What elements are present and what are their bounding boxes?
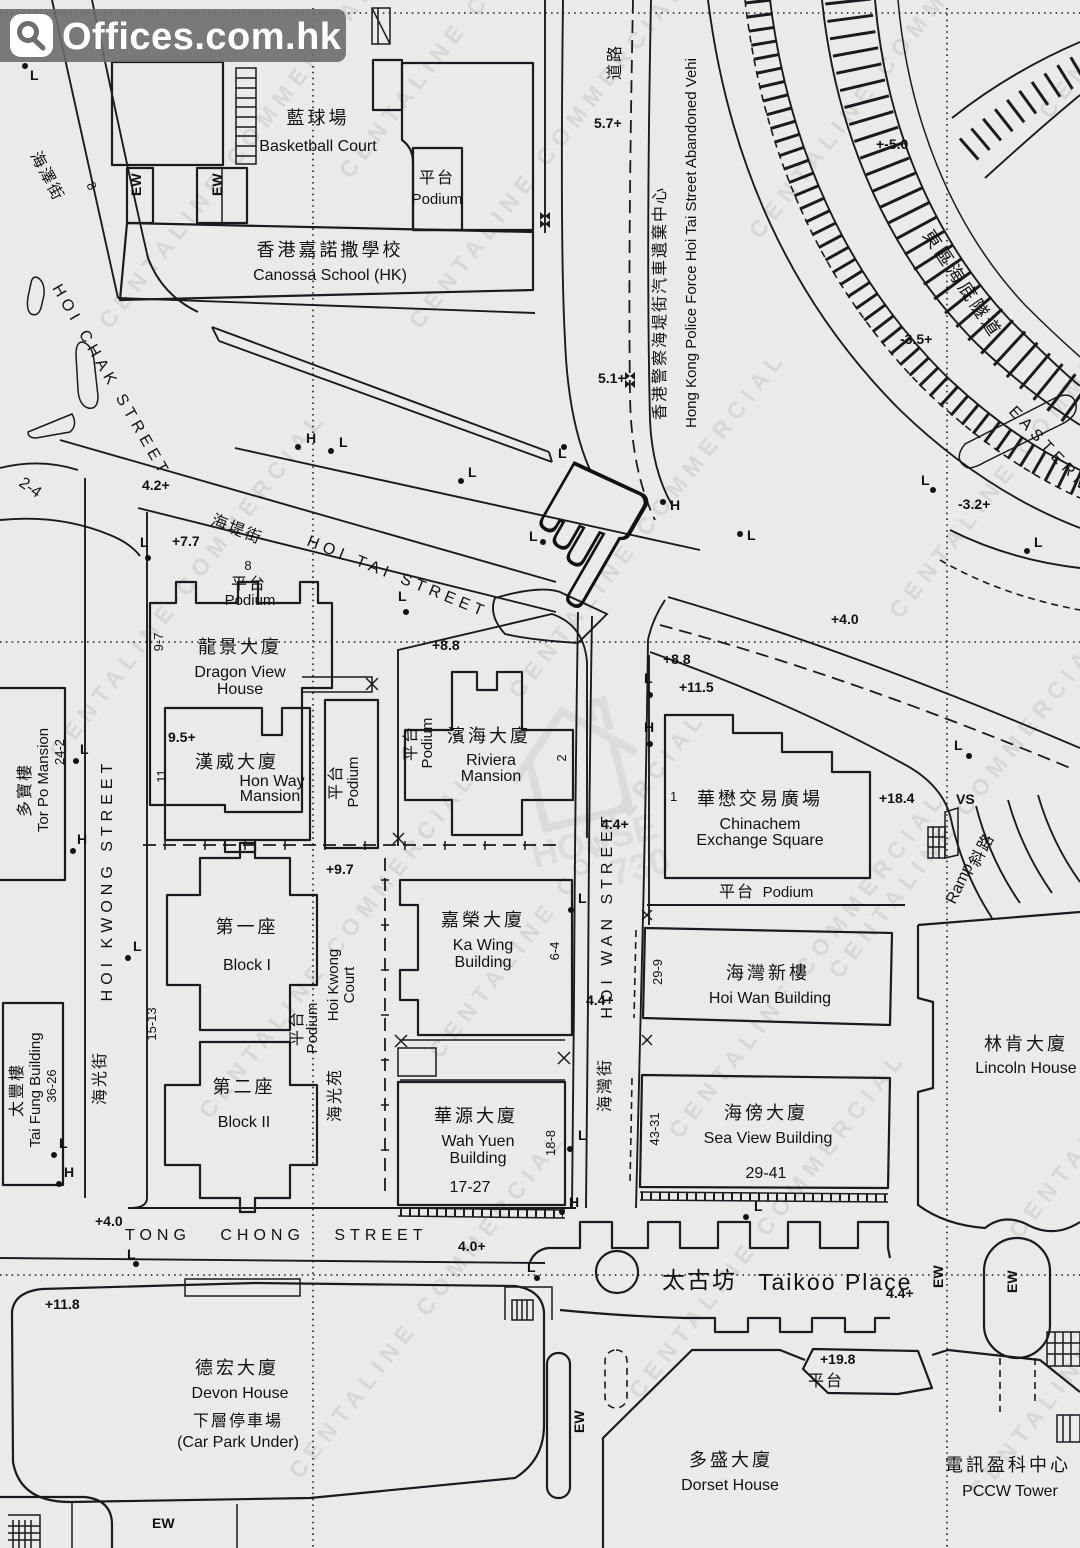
marker-label-l: L — [127, 1246, 136, 1262]
devon-label-en: Devon House — [192, 1385, 289, 1402]
ka-wing-label-en2: Building — [455, 954, 512, 971]
marker-label-h: H — [64, 1164, 74, 1180]
hoi-kwong-street-label-en: HOI KWONG STREET — [99, 759, 116, 1002]
basketball-court-label-en: Basketball Court — [259, 138, 377, 155]
marker-label-l: L — [398, 588, 407, 604]
survey-dot — [568, 907, 574, 913]
hon-way-podium-en: Podium — [345, 757, 362, 808]
sea-view-label-zh: 海傍大廈 — [724, 1103, 808, 1123]
dragon-view-podium-zh: 平台 — [231, 575, 267, 593]
spot-height-label: 4.4+ — [586, 992, 614, 1008]
canossa-school-label-zh: 香港嘉諾撒學校 — [257, 240, 404, 260]
tai-fung-nums: 36-26 — [44, 1069, 59, 1102]
survey-dot — [647, 692, 653, 698]
map-screenshot: CENTALINE COMMERCIALCENTALINE COMMERCIAL… — [0, 0, 1080, 1548]
marker-label-l: L — [644, 670, 653, 686]
hoi-wan-building-label-zh: 海灣新樓 — [726, 963, 810, 983]
ka-wing-label-zh: 嘉榮大廈 — [441, 910, 525, 930]
marker-label-h: H — [77, 831, 87, 847]
spot-height-label: +8.8 — [432, 637, 460, 653]
hoi-chak-number: 8 — [83, 179, 100, 193]
marker-label-l: L — [80, 741, 89, 757]
marker-label-l: L — [339, 434, 348, 450]
marker-label-l: L — [578, 890, 587, 906]
podium-label-en: Podium — [412, 191, 463, 208]
marker-label-ew: EW — [128, 173, 144, 196]
riviera-podium-en: Podium — [419, 718, 436, 769]
tor-po-label-en: Tor Po Mansion — [35, 728, 52, 832]
survey-dot — [328, 448, 334, 454]
offices-logo: Offices.com.hk — [0, 9, 346, 62]
spot-height-label: +4.0 — [95, 1213, 123, 1229]
hoi-wan-building-lot: 29-9 — [650, 959, 665, 985]
marker-label-l: L — [468, 464, 477, 480]
marker-label-l: L — [921, 472, 930, 488]
survey-dot — [743, 1214, 749, 1220]
spot-height-label: +4.0 — [831, 611, 859, 627]
spot-height-label: 4.4+ — [601, 816, 629, 832]
spot-height-label: +19.8 — [820, 1351, 856, 1367]
survey-dot — [125, 955, 131, 961]
block2-label-zh: 第二座 — [213, 1077, 276, 1097]
survey-dot — [534, 1275, 540, 1281]
marker-label-l: L — [59, 1135, 68, 1151]
taikoo-podium-zh: 平台 — [808, 1372, 844, 1390]
survey-dot — [567, 1146, 573, 1152]
hoi-chak-street-label-zh: 海澤街 — [26, 148, 67, 204]
marker-label-ew: EW — [930, 1265, 946, 1288]
spot-height-label: 4.2+ — [142, 477, 170, 493]
pccw-label-zh: 電訊盈科中心 — [945, 1455, 1071, 1475]
survey-dot — [966, 753, 972, 759]
marker-label-l: L — [30, 67, 39, 83]
marker-label-h: H — [569, 1194, 579, 1210]
marker-label-h: H — [644, 719, 654, 735]
lincoln-label-zh: 林肯大廈 — [984, 1034, 1068, 1054]
tai-fung-label-zh: 太豐樓 — [8, 1063, 26, 1117]
spot-height-label: 4.4+ — [886, 1285, 914, 1301]
wah-yuen-label-zh: 華源大廈 — [434, 1106, 518, 1126]
ramp-label-zh: 斜路 — [966, 830, 999, 870]
watermark-text: CENTALINE COMMERCIAL — [43, 404, 331, 763]
block1-label-zh: 第一座 — [216, 917, 279, 937]
hon-way-label-zh: 漢威大廈 — [195, 752, 279, 772]
blocks-podium-en: Podium — [304, 1003, 321, 1054]
survey-dot — [403, 609, 409, 615]
marker-label-l: L — [527, 1259, 536, 1275]
spot-height-label: +18.4 — [879, 790, 915, 806]
taikoo-place-label-zh: 太古坊 — [662, 1267, 737, 1293]
hon-way-lot: 11 — [154, 769, 169, 783]
tong-chong-street-label: TONG CHONG STREET — [125, 1227, 428, 1244]
dragon-view-podium-en: Podium — [225, 592, 276, 609]
basketball-court-label-zh: 藍球場 — [287, 108, 350, 128]
watermark-text: CENTALINE COMMERCIAL — [743, 0, 1031, 243]
wah-yuen-label-en1: Wah Yuen — [442, 1133, 515, 1150]
marker-label-vs: VS — [956, 791, 975, 807]
sea-view-lot: 43-31 — [647, 1112, 662, 1145]
tor-po-label-zh: 多寶樓 — [15, 763, 34, 817]
riviera-label-en1: Riviera — [466, 752, 516, 769]
dorset-label-en: Dorset House — [681, 1477, 779, 1494]
hoi-wan-building-label-en: Hoi Wan Building — [709, 990, 831, 1007]
spot-height-label: +11.5 — [679, 679, 714, 695]
watermark-text: CENTALINE COMMERCIAL — [963, 1144, 1080, 1503]
spot-height-label: +9.7 — [326, 861, 354, 877]
hoi-kwong-court-label-en2: Court — [341, 966, 358, 1004]
lincoln-label-en: Lincoln House — [975, 1060, 1077, 1077]
watermark-text: CENTALINE COMMERCIAL — [283, 1124, 571, 1483]
spot-height-label: 5.1+ — [598, 370, 626, 386]
survey-dot — [22, 63, 28, 69]
survey-dot — [51, 1152, 57, 1158]
survey-dot — [1024, 548, 1030, 554]
sea-view-nums: 29-41 — [746, 1165, 787, 1182]
watermark-text: CENTALINE COMMERCIAL — [333, 0, 621, 183]
chinachem-label-en2: Exchange Square — [696, 832, 823, 849]
spot-height-label: +11.8 — [45, 1296, 80, 1312]
dorset-label-zh: 多盛大廈 — [689, 1450, 773, 1470]
marker-label-h: H — [670, 497, 680, 513]
marker-label-ew: EW — [152, 1515, 175, 1531]
riviera-lot: 2 — [554, 754, 569, 761]
hoi-kwong-court-label-en1: Hoi Kwong — [325, 949, 342, 1022]
hon-way-podium-zh: 平台 — [327, 764, 345, 800]
devon-label-zh: 德宏大廈 — [195, 1358, 279, 1378]
road-label-zh: 道路 — [606, 44, 624, 80]
ka-wing-lot: 6-4 — [547, 942, 562, 961]
dragon-view-label-en1: Dragon View — [194, 664, 286, 681]
marker-label-ew: EW — [209, 173, 225, 196]
logo-brand-text: Offices.com.hk — [62, 16, 342, 58]
survey-dot — [295, 444, 301, 450]
survey-dot — [145, 555, 151, 561]
podium-label-zh: 平台 — [419, 169, 455, 187]
canossa-school-label-en: Canossa School (HK) — [253, 267, 407, 284]
survey-map: CENTALINE COMMERCIALCENTALINE COMMERCIAL… — [0, 0, 1080, 1548]
chinachem-label-en1: Chinachem — [720, 816, 801, 833]
spot-height-label: 4.0+ — [458, 1238, 486, 1254]
hoi-wan-street-label-en: HOI WAN STREET — [599, 811, 616, 1018]
marker-label-l: L — [1034, 534, 1043, 550]
dragon-view-lot: 9-7 — [151, 633, 166, 652]
spot-height-label: -3.5+ — [900, 331, 932, 347]
riviera-label-en2: Mansion — [461, 768, 521, 785]
marker-label-l: L — [747, 527, 756, 543]
tai-fung-label-en: Tai Fung Building — [27, 1032, 44, 1147]
police-centre-label-en: Hong Kong Police Force Hoi Tai Street Ab… — [683, 58, 700, 428]
pccw-label-en: PCCW Tower — [962, 1483, 1058, 1500]
marker-label-l: L — [954, 737, 963, 753]
sea-view-label-en: Sea View Building — [704, 1130, 833, 1147]
marker-label-h: H — [306, 430, 316, 446]
chinachem-podium-zh: 平台 — [719, 883, 755, 901]
marker-label-l: L — [578, 1127, 587, 1143]
survey-dot — [458, 478, 464, 484]
spot-height-label: +8.8 — [663, 651, 691, 667]
dragon-view-label-zh: 龍景大廈 — [198, 637, 282, 657]
survey-dot — [73, 758, 79, 764]
survey-dot — [737, 531, 743, 537]
dragon-view-podium-8: 8 — [244, 558, 251, 573]
block2-label-en: Block II — [218, 1114, 270, 1131]
devon-carpark-en: (Car Park Under) — [177, 1434, 299, 1451]
hoi-kwong-street-label-zh: 海光街 — [91, 1051, 109, 1105]
spot-height-label: 5.7+ — [594, 115, 622, 131]
police-centre-label-zh: 香港警察海堤街汽車遺棄中心 — [651, 186, 669, 420]
tunnel-label-zh: 東區海底隧道 — [919, 226, 1006, 342]
devon-carpark-zh: 下層停車場 — [193, 1412, 283, 1430]
wah-yuen-label-en2: Building — [450, 1150, 507, 1167]
spot-height-label: +-5.0 — [876, 136, 909, 152]
hon-way-label-en2: Mansion — [240, 788, 300, 805]
wah-yuen-nums: 17-27 — [450, 1179, 491, 1196]
block1-lot: 15-13 — [144, 1007, 159, 1040]
wah-yuen-lot: 18-8 — [543, 1130, 558, 1156]
spot-height-label: 9.5+ — [168, 729, 196, 745]
marker-label-ew: EW — [1004, 1270, 1020, 1293]
chinachem-label-zh: 華懋交易廣場 — [697, 789, 823, 809]
marker-label-l: L — [754, 1198, 763, 1214]
marker-label-l: L — [133, 938, 142, 954]
block1-label-en: Block I — [223, 957, 271, 974]
corner-lot-label: 2-4 — [16, 474, 45, 501]
hoi-wan-street-label-zh: 海灣街 — [596, 1058, 614, 1112]
hoi-kwong-court-label-zh: 海光苑 — [326, 1068, 344, 1122]
survey-dot — [930, 487, 936, 493]
tor-po-nums: 24-2 — [52, 739, 67, 765]
spot-height-label: -3.2+ — [958, 496, 990, 512]
logo-magnifier-badge — [10, 14, 53, 57]
survey-dot — [647, 741, 653, 747]
ka-wing-label-en1: Ka Wing — [453, 937, 513, 954]
spot-height-label: +7.7 — [172, 533, 200, 549]
riviera-podium-zh: 平台 — [402, 725, 420, 761]
chinachem-lot: 1 — [670, 789, 677, 804]
dragon-view-label-en2: House — [217, 681, 263, 698]
survey-dot — [133, 1261, 139, 1267]
survey-dot — [56, 1181, 62, 1187]
ramp-label-en: Ramp — [943, 861, 976, 907]
chinachem-podium-en: Podium — [763, 884, 814, 901]
riviera-label-zh: 濱海大廈 — [447, 726, 531, 746]
marker-label-l: L — [140, 534, 149, 550]
marker-label-ew: EW — [571, 1410, 587, 1433]
survey-dot — [70, 848, 76, 854]
survey-dot — [559, 1209, 565, 1215]
